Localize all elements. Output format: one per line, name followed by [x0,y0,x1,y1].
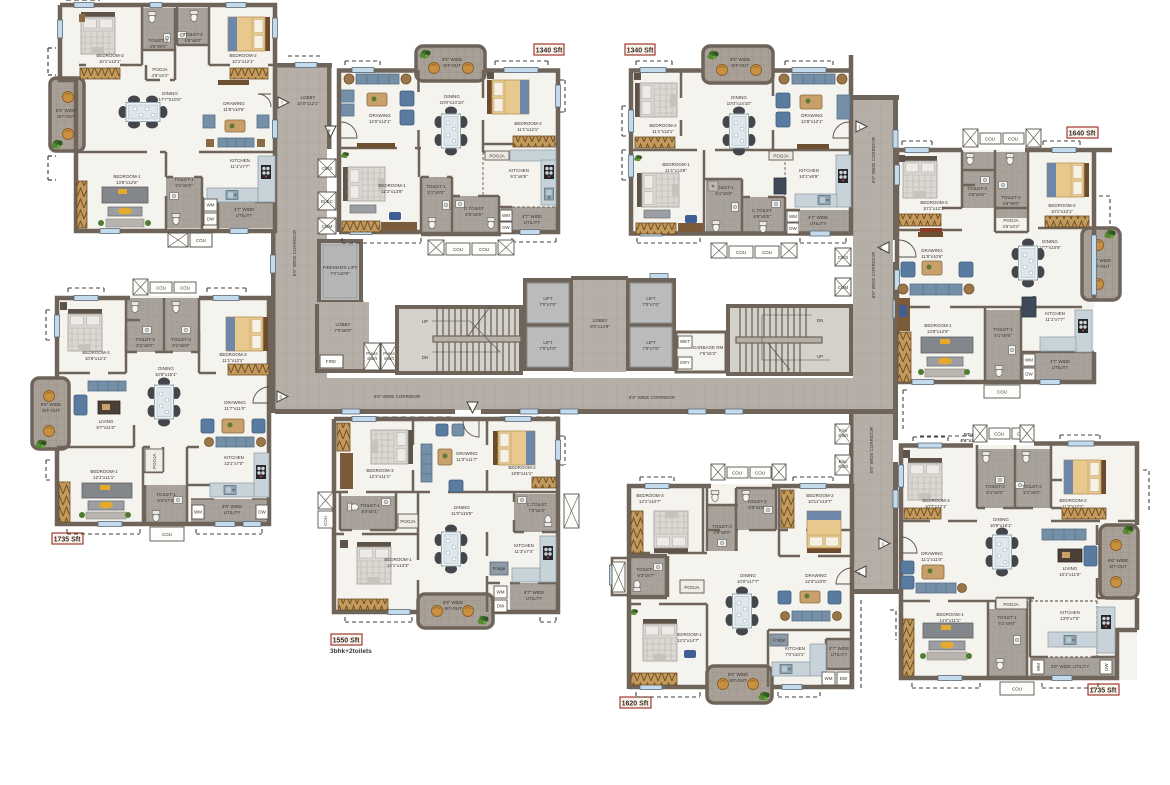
svg-text:LIFT: LIFT [543,340,553,345]
svg-text:5'1"x9'0": 5'1"x9'0" [715,191,733,196]
svg-text:WM: WM [1036,663,1041,671]
svg-text:10'0"x17'7": 10'0"x17'7" [737,579,760,584]
svg-text:FIRE: FIRE [326,359,336,364]
svg-text:10'1"x8'9": 10'1"x8'9" [799,174,819,179]
svg-text:shaft: shaft [384,356,395,361]
svg-text:DW: DW [497,604,505,609]
svg-text:COU: COU [180,286,190,291]
svg-text:4'7" WIDE: 4'7" WIDE [524,590,544,595]
svg-text:12'1"x11'1": 12'1"x11'1" [93,475,115,480]
svg-text:1640 Sft: 1640 Sft [1069,131,1097,138]
svg-text:DW: DW [207,217,215,222]
svg-text:13'0"x7'0": 13'0"x7'0" [1060,616,1080,621]
svg-text:10'0"x12'1": 10'0"x12'1" [297,101,320,106]
svg-text:DINING: DINING [444,94,460,99]
svg-text:5'6" WIDE: 5'6" WIDE [41,402,61,407]
svg-text:3bhk+2toilets: 3bhk+2toilets [330,648,372,655]
svg-text:11'1"x11'0": 11'1"x11'0" [921,557,943,562]
svg-text:KITCHEN: KITCHEN [785,646,805,651]
svg-text:DW: DW [1104,663,1109,671]
svg-text:COU: COU [985,137,995,142]
svg-text:COU: COU [323,516,328,526]
svg-text:10'0"x14'10": 10'0"x14'10" [727,101,752,106]
svg-text:DINING: DINING [162,91,178,96]
svg-text:SIT-OUT: SIT-OUT [1109,564,1127,569]
svg-text:7'0"x7'0": 7'0"x7'0" [642,346,660,351]
svg-text:SIT-OUT: SIT-OUT [57,114,75,119]
svg-text:10'8"x11'1": 10'8"x11'1" [511,471,533,476]
svg-text:LIVING: LIVING [1063,566,1078,571]
svg-text:BEDROOM-2: BEDROOM-2 [514,121,542,126]
svg-text:4'6"x9'0": 4'6"x9'0" [1002,201,1020,206]
svg-text:TOILET-1: TOILET-1 [426,184,446,189]
svg-text:DRY: DRY [680,360,689,365]
svg-text:6'6" WIDE CORRIDOR: 6'6" WIDE CORRIDOR [871,136,876,183]
svg-text:4'6"x3'4": 4'6"x3'4" [1002,224,1020,229]
svg-text:shaft: shaft [367,356,378,361]
svg-text:DRAWING: DRAWING [921,248,943,253]
svg-text:LIFT: LIFT [543,296,553,301]
svg-text:5'1"x8'0": 5'1"x8'0" [172,343,190,348]
svg-text:17'7"X10'6": 17'7"X10'6" [159,97,182,102]
svg-text:LOBBY: LOBBY [592,318,607,323]
svg-text:11'1"x7'7": 11'1"x7'7" [1045,317,1065,322]
svg-text:10'0"x14'10": 10'0"x14'10" [440,100,465,105]
svg-text:8'0"x14'8": 8'0"x14'8" [590,324,610,329]
svg-text:DINING: DINING [731,95,747,100]
svg-text:12'1"x7'0": 12'1"x7'0" [224,461,244,466]
svg-text:WM: WM [502,213,510,218]
svg-text:10'1"x12'1": 10'1"x12'1" [1051,209,1074,214]
svg-text:ELEC: ELEC [321,199,334,204]
svg-text:6'6" WIDE CORRIDOR: 6'6" WIDE CORRIDOR [292,229,297,276]
svg-text:POOJA: POOJA [152,454,157,469]
svg-text:WM: WM [497,590,505,595]
svg-text:DW: DW [258,510,266,515]
svg-text:BEDROOM-2: BEDROOM-2 [1059,498,1087,503]
svg-text:COU: COU [997,390,1007,395]
svg-text:5'1"x8'0": 5'1"x8'0" [1023,490,1041,495]
svg-text:11'1"x12'1": 11'1"x12'1" [652,129,674,134]
svg-text:3'9" WIDE UTILITY: 3'9" WIDE UTILITY [1051,664,1089,669]
svg-text:13'8"x12'6": 13'8"x12'6" [927,329,950,334]
svg-text:5'1"x8'6": 5'1"x8'6" [994,333,1012,338]
svg-text:KITCHEN: KITCHEN [1060,610,1080,615]
svg-text:C.TOILET: C.TOILET [464,206,484,211]
svg-text:4'6"x8'0": 4'6"x8'0" [968,192,986,197]
svg-text:TOILET-3: TOILET-3 [148,38,168,43]
svg-text:17'7"x10'6": 17'7"x10'6" [1039,245,1062,250]
svg-text:SIT-OUT: SIT-OUT [731,63,749,68]
svg-text:12'1"x10'7": 12'1"x10'7" [639,499,662,504]
svg-text:6'4"x7'4": 6'4"x7'4" [157,498,175,503]
svg-text:BEDROOM-1: BEDROOM-1 [674,632,702,637]
svg-text:4'7" WIDE: 4'7" WIDE [522,214,542,219]
svg-text:DRAWING: DRAWING [805,573,827,578]
svg-text:POOJA: POOJA [152,67,167,72]
svg-text:DW: DW [789,226,797,231]
svg-text:KITCHEN: KITCHEN [230,158,250,163]
svg-text:POOJA: POOJA [400,519,415,524]
svg-text:UTILITY: UTILITY [1052,365,1069,370]
svg-text:6'6" WIDE CORRIDOR: 6'6" WIDE CORRIDOR [871,251,876,298]
svg-text:5'1"x9'0": 5'1"x9'0" [998,621,1016,626]
svg-text:DINING: DINING [740,573,756,578]
svg-text:13'8"x12'6": 13'8"x12'6" [116,180,139,185]
svg-text:UTILITY: UTILITY [526,596,543,601]
svg-text:4'7" WIDE: 4'7" WIDE [808,215,828,220]
svg-text:BEDROOM-3: BEDROOM-3 [82,350,110,355]
svg-text:14'4"x11'1": 14'4"x11'1" [939,618,961,623]
svg-text:COM: COM [838,285,849,290]
svg-text:1340 Sft: 1340 Sft [536,48,564,55]
svg-text:KITCHEN: KITCHEN [1045,311,1065,316]
svg-text:BEDROOM-1: BEDROOM-1 [378,183,406,188]
svg-text:TOILET-1: TOILET-1 [993,327,1013,332]
svg-text:BEDROOM-1: BEDROOM-1 [936,612,964,617]
svg-text:BEDROOM-3: BEDROOM-3 [920,200,948,205]
svg-text:TOILET-1: TOILET-1 [997,615,1017,620]
svg-text:TOILET-1: TOILET-1 [156,492,176,497]
svg-text:COU: COU [732,471,742,476]
svg-text:11'1"x13'8": 11'1"x13'8" [665,168,687,173]
svg-text:8'4"x5'1": 8'4"x5'1" [361,509,379,514]
svg-text:SIT-OUT: SIT-OUT [444,606,462,611]
svg-text:12'8"x12'1": 12'8"x12'1" [801,119,824,124]
svg-text:WM: WM [1025,358,1033,363]
svg-text:DRAWING: DRAWING [456,451,478,456]
svg-text:4'6"x8'0": 4'6"x8'0" [184,38,202,43]
svg-text:DINING: DINING [993,517,1009,522]
svg-text:TOILET-1: TOILET-1 [174,177,194,182]
svg-text:5'1"x8'0": 5'1"x8'0" [136,343,154,348]
svg-text:5'1"x8'0": 5'1"x8'0" [986,490,1004,495]
svg-text:4'6"x9'0": 4'6"x9'0" [713,530,731,535]
svg-text:shaft: shaft [838,464,849,469]
svg-text:POOJA: POOJA [684,585,699,590]
svg-text:UTILITY: UTILITY [524,220,541,225]
svg-text:10'1"x12'1": 10'1"x12'1" [99,59,122,64]
svg-text:TOILET-2: TOILET-2 [1001,195,1021,200]
svg-text:9'1"x8'9": 9'1"x8'9" [510,174,528,179]
svg-text:UTILITY: UTILITY [810,221,827,226]
svg-text:WM: WM [207,203,215,208]
svg-text:FIREMAN'S LIFT: FIREMAN'S LIFT [323,265,358,270]
svg-text:COU: COU [994,432,1004,437]
svg-text:7'0"x8'0": 7'0"x8'0" [334,328,352,333]
svg-text:POOJA: POOJA [773,154,788,159]
svg-text:DINING: DINING [1042,239,1058,244]
svg-text:BEDROOM-1: BEDROOM-1 [924,323,952,328]
svg-text:WM: WM [194,510,202,515]
svg-text:WET: WET [680,339,690,344]
svg-text:UTILITY: UTILITY [831,652,848,657]
svg-text:WM: WM [825,676,833,681]
svg-text:4'7" WIDE: 4'7" WIDE [829,646,849,651]
svg-text:POOJA: POOJA [489,154,504,159]
svg-text:11'1"x7'7": 11'1"x7'7" [230,164,250,169]
svg-text:COU: COU [196,238,206,243]
svg-text:TOILET-2: TOILET-2 [183,32,203,37]
svg-text:POOJA: POOJA [1003,602,1018,607]
svg-text:DRAWING: DRAWING [801,113,823,118]
svg-text:TOILET-3: TOILET-3 [712,524,732,529]
svg-text:1550 Sft: 1550 Sft [333,638,361,645]
svg-text:LOBBY: LOBBY [335,322,350,327]
svg-text:7'0"x10'0": 7'0"x10'0" [330,271,350,276]
svg-text:COU: COU [1008,137,1018,142]
svg-text:12'1"x13'3": 12'1"x13'3" [387,563,410,568]
svg-text:10'1"x11'0": 10'1"x11'0" [1059,572,1081,577]
svg-text:KITCHEN: KITCHEN [514,543,534,548]
svg-text:5'6" WIDE: 5'6" WIDE [730,57,750,62]
svg-text:12'3"x10'0": 12'3"x10'0" [805,579,828,584]
svg-text:BEDROOM-1: BEDROOM-1 [384,557,412,562]
svg-text:COU: COU [453,247,463,252]
svg-text:KITCHEN: KITCHEN [509,168,529,173]
svg-text:11'8"x10'6": 11'8"x10'6" [223,107,245,112]
svg-text:DW: DW [502,225,510,230]
svg-text:1735 Sft: 1735 Sft [54,537,82,544]
svg-text:COU: COU [736,250,746,255]
svg-text:Fridge: Fridge [773,638,786,643]
svg-text:BEDROOM-3: BEDROOM-3 [96,53,124,58]
svg-text:DINING: DINING [454,505,470,510]
svg-text:SIT-OUT: SIT-OUT [443,63,461,68]
svg-text:5'6" WIDE: 5'6" WIDE [1108,558,1128,563]
svg-text:DW: DW [840,676,848,681]
svg-text:5'6" WIDE: 5'6" WIDE [728,672,748,677]
svg-text:shaft: shaft [838,433,849,438]
svg-text:BEDROOM-3: BEDROOM-3 [636,493,664,498]
svg-text:4'7" WIDE: 4'7" WIDE [1050,359,1070,364]
svg-text:11'1"x12'1": 11'1"x12'1" [222,358,244,363]
svg-text:BEDROOM-2: BEDROOM-2 [508,465,536,470]
svg-text:DRAWING: DRAWING [369,113,391,118]
svg-text:LOBBY: LOBBY [300,95,315,100]
svg-text:12'1"x14'7": 12'1"x14'7" [677,638,700,643]
svg-text:CWS: CWS [838,255,849,260]
svg-text:COM: COM [322,224,333,229]
svg-text:8'3"x5'7": 8'3"x5'7" [637,573,655,578]
svg-text:TOILET-1: TOILET-1 [360,503,380,508]
svg-text:9'7"x11'0": 9'7"x11'0" [96,425,116,430]
svg-text:11'7"x11'0": 11'7"x11'0" [224,406,246,411]
svg-text:LIVING: LIVING [99,419,114,424]
svg-text:BEDROOM-2: BEDROOM-2 [1048,203,1076,208]
svg-text:3'9" WIDE: 3'9" WIDE [222,504,242,509]
svg-text:BEDROOM-1: BEDROOM-1 [113,174,141,179]
svg-text:7'0"x7'0": 7'0"x7'0" [539,346,557,351]
svg-text:11'8"x10'6": 11'8"x10'6" [921,254,943,259]
svg-text:COU: COU [479,247,489,252]
svg-text:BEDROOM-1: BEDROOM-1 [90,469,118,474]
svg-text:COU: COU [755,471,765,476]
svg-text:10'1"x12'1": 10'1"x12'1" [923,206,946,211]
svg-text:BEDROOM-2: BEDROOM-2 [229,53,257,58]
svg-text:DRAWING: DRAWING [224,400,246,405]
svg-text:BEDROOM-2: BEDROOM-2 [649,123,677,128]
svg-text:7'6"x5'3": 7'6"x5'3" [699,351,717,356]
svg-text:DW: DW [1025,372,1033,377]
svg-text:Fridge: Fridge [493,566,506,571]
svg-text:DRAWING: DRAWING [223,101,245,106]
svg-text:C.TOILET: C.TOILET [527,502,547,507]
svg-text:UTILITY: UTILITY [224,510,241,515]
svg-text:10'8"x12'1": 10'8"x12'1" [85,356,108,361]
svg-text:1620 Sft: 1620 Sft [622,701,650,708]
svg-text:6'6" WIDE CORRIDOR: 6'6" WIDE CORRIDOR [869,426,874,473]
svg-text:6'6"x6'5": 6'6"x6'5" [465,212,483,217]
svg-text:4'6"x9'0": 4'6"x9'0" [149,44,167,49]
svg-text:KITCHEN: KITCHEN [799,168,819,173]
svg-text:CWS: CWS [322,166,333,171]
svg-text:BEDROOM-2: BEDROOM-2 [806,493,834,498]
svg-text:DN: DN [817,318,824,323]
svg-text:11'0"x11'7": 11'0"x11'7" [456,457,478,462]
svg-text:UP: UP [422,319,428,324]
svg-text:7'0"x6'0": 7'0"x6'0" [528,508,546,513]
svg-text:1340 Sft: 1340 Sft [627,48,655,55]
svg-text:COU: COU [156,286,166,291]
svg-text:10'8"x15'1": 10'8"x15'1" [990,523,1013,528]
svg-text:5'6" WIDE: 5'6" WIDE [442,57,462,62]
svg-text:7'0"x7'0": 7'0"x7'0" [642,302,660,307]
svg-text:5'6" WIDE: 5'6" WIDE [443,600,463,605]
svg-text:DN: DN [422,355,429,360]
svg-text:DRAWING: DRAWING [921,551,943,556]
svg-text:SIT-OUT: SIT-OUT [729,678,747,683]
svg-text:WM: WM [789,214,797,219]
svg-text:10'8"x15'1": 10'8"x15'1" [155,372,178,377]
svg-text:4'6"x3'4": 4'6"x3'4" [151,73,169,78]
svg-text:6'6" WIDE CORRIDOR: 6'6" WIDE CORRIDOR [629,395,676,400]
svg-text:COU: COU [162,532,172,537]
svg-text:7'0"x10'1": 7'0"x10'1" [785,652,805,657]
svg-text:TOILET-3: TOILET-3 [135,337,155,342]
svg-text:SIT-OUT: SIT-OUT [42,408,60,413]
svg-text:COU: COU [762,250,772,255]
svg-text:GARBAGE RM: GARBAGE RM [693,345,724,350]
svg-text:5'6" WIDE: 5'6" WIDE [56,108,76,113]
svg-text:TOILET-2: TOILET-2 [1022,484,1042,489]
svg-text:DINING: DINING [158,366,174,371]
svg-text:LIFT: LIFT [646,340,656,345]
svg-text:BEDROOM-2: BEDROOM-2 [219,352,247,357]
svg-text:TOILET-3: TOILET-3 [985,484,1005,489]
svg-text:10'11"x10'7": 10'11"x10'7" [808,499,833,504]
svg-text:COU: COU [1012,687,1022,692]
svg-text:LIFT: LIFT [646,296,656,301]
svg-text:TOILET-3: TOILET-3 [967,186,987,191]
svg-text:12'1"x11'1": 12'1"x11'1" [369,474,391,479]
svg-text:5'1"x9'0": 5'1"x9'0" [427,190,445,195]
svg-text:POOJA: POOJA [1003,218,1018,223]
svg-text:6'6" WIDE CORRIDOR: 6'6" WIDE CORRIDOR [374,394,421,399]
svg-text:11'1"x12'1": 11'1"x12'1" [517,127,539,132]
svg-text:BEDROOM-1: BEDROOM-1 [662,162,690,167]
svg-text:6'6"x6'5": 6'6"x6'5" [753,214,771,219]
svg-text:UP: UP [817,354,823,359]
svg-text:BEDROOM-3: BEDROOM-3 [366,468,394,473]
svg-text:BEDROOM-3: BEDROOM-3 [922,498,950,503]
svg-text:5'1"x8'6": 5'1"x8'6" [175,183,193,188]
svg-text:11'3"x7'4": 11'3"x7'4" [514,549,534,554]
svg-text:12'2"x13'8": 12'2"x13'8" [381,189,404,194]
svg-text:TOILET-3: TOILET-3 [171,337,191,342]
svg-text:UTILITY: UTILITY [236,213,253,218]
svg-text:C.TOILET: C.TOILET [752,208,772,213]
svg-text:TOILET-2: TOILET-2 [747,499,767,504]
svg-text:12'0"x12'1": 12'0"x12'1" [369,119,392,124]
svg-text:7'0"x7'0": 7'0"x7'0" [539,302,557,307]
svg-text:KITCHEN: KITCHEN [224,455,244,460]
svg-text:10'1"x12'1": 10'1"x12'1" [232,59,255,64]
svg-text:11'0"x15'9": 11'0"x15'9" [451,511,473,516]
svg-text:4'7" WIDE: 4'7" WIDE [234,207,254,212]
